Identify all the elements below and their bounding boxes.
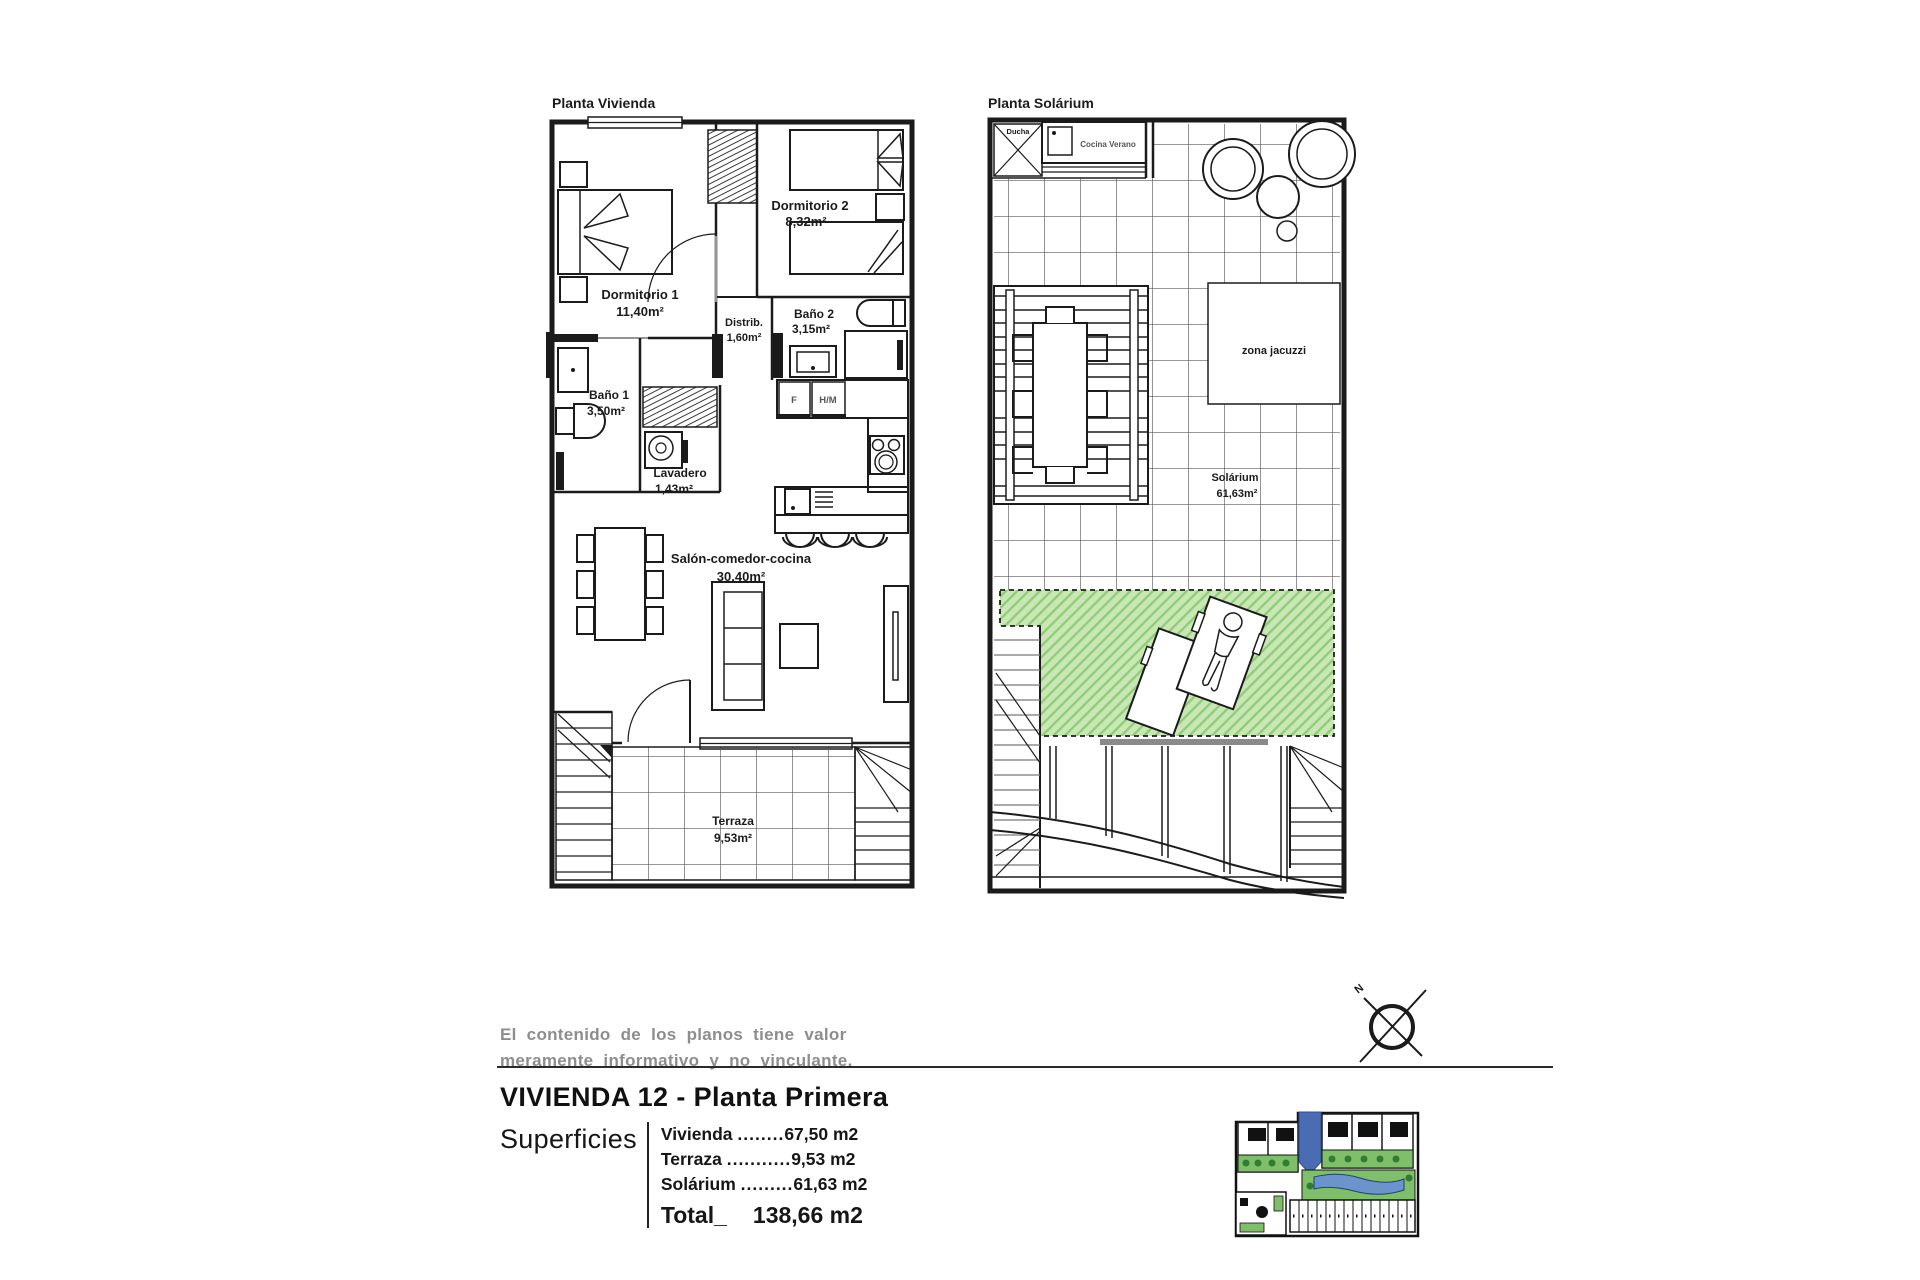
ducha-label: Ducha — [1007, 127, 1031, 136]
surface-row-solarium: Solárium .........61,63 m2 — [661, 1172, 867, 1197]
superficies-label: Superficies — [500, 1122, 637, 1155]
surface-row-vivienda: Vivienda ........67,50 m2 — [661, 1122, 867, 1147]
row-dots: ........ — [737, 1124, 784, 1144]
ducha: Ducha — [994, 124, 1042, 176]
window-top — [588, 117, 682, 128]
solarium-label: Solárium — [1211, 472, 1258, 484]
dormitorio2-area: 8,32m² — [785, 214, 827, 229]
salon-label: Salón-comedor-cocina — [671, 551, 812, 566]
bar-stools — [783, 533, 887, 547]
zona-jacuzzi: zona jacuzzi — [1208, 283, 1340, 404]
compass-north-label: N — [1352, 982, 1366, 996]
green-area — [1000, 590, 1334, 737]
coffee-table — [780, 624, 818, 668]
divider-rule — [497, 1066, 1553, 1068]
planta-vivienda: Planta Vivienda — [546, 95, 912, 886]
surface-row-terraza: Terraza ...........9,53 m2 — [661, 1147, 867, 1172]
tv-unit — [884, 586, 908, 702]
row-dots: ........... — [727, 1149, 791, 1169]
row-value: 67,50 m2 — [784, 1124, 858, 1144]
plans-drawing: Planta Vivienda — [0, 0, 1920, 1280]
zona-jacuzzi-label: zona jacuzzi — [1242, 345, 1306, 357]
superficies-divider — [647, 1122, 649, 1228]
disclaimer-line2: meramente informativo y no vinculante. — [500, 1048, 1560, 1074]
lavadero-fixtures — [645, 432, 688, 468]
fridge-label: F — [791, 395, 797, 406]
oven-label: H/M — [819, 395, 837, 406]
row-label: Terraza — [661, 1149, 722, 1169]
interior-walls — [546, 124, 910, 492]
unit12-highlight — [1299, 1112, 1321, 1174]
dormitorio2-label: Dormitorio 2 — [771, 198, 848, 213]
total-label: Total_ — [661, 1202, 727, 1228]
stairs-solarium-right — [1290, 746, 1344, 868]
total-value: 138,66 m2 — [753, 1202, 863, 1228]
wardrobe-dorm2 — [708, 130, 757, 203]
wardrobe-hall — [643, 387, 717, 427]
pergola-dining — [994, 286, 1148, 504]
salon-south-wall — [552, 680, 912, 749]
dining-table — [595, 528, 645, 640]
cocina-verano-label: Cocina Verano — [1080, 140, 1136, 149]
disclaimer-line1: El contenido de los planos tiene valor — [500, 1022, 1560, 1048]
terraza-label: Terraza — [712, 814, 754, 828]
row-label: Solárium — [661, 1174, 736, 1194]
dormitorio1-area: 11,40m² — [616, 304, 664, 319]
superficies-table: Superficies Vivienda ........67,50 m2 Te… — [500, 1122, 867, 1228]
row-value: 9,53 m2 — [791, 1149, 855, 1169]
bano2-label: Baño 2 — [794, 307, 834, 321]
stairs-right — [855, 747, 912, 880]
bano1-label: Baño 1 — [589, 388, 629, 402]
solarium-area: 61,63m² — [1217, 488, 1258, 500]
dormitorio1-label: Dormitorio 1 — [601, 287, 678, 302]
bano1-area: 3,50m² — [587, 404, 625, 418]
distrib-label: Distrib. — [725, 317, 763, 329]
right-plan-title: Planta Solárium — [988, 95, 1094, 111]
dormitorio1-furniture — [558, 162, 716, 302]
left-plan-title: Planta Vivienda — [552, 95, 655, 111]
row-dots: ......... — [741, 1174, 794, 1194]
lavadero-label: Lavadero — [653, 466, 706, 480]
stairs-left — [556, 712, 612, 880]
distrib-area: 1,60m² — [727, 332, 762, 344]
row-label: Vivienda — [661, 1124, 733, 1144]
row-value: 61,63 m2 — [793, 1174, 867, 1194]
terraza-area: 9,53m² — [714, 831, 752, 845]
bano2-area: 3,15m² — [792, 322, 830, 336]
planta-solarium: Planta Solárium Ducha Cocina Verano — [988, 95, 1355, 898]
unit-title: VIVIENDA 12 - Planta Primera — [500, 1082, 888, 1113]
lavadero-area: 1,43m² — [655, 482, 693, 496]
site-plan-minimap — [1236, 1112, 1418, 1236]
surface-total-row: Total_138,66 m2 — [661, 1203, 867, 1228]
floorplan-sheet: Planta Vivienda — [0, 0, 1920, 1280]
sofa — [712, 582, 764, 710]
salon-area: 30,40m² — [717, 569, 766, 584]
